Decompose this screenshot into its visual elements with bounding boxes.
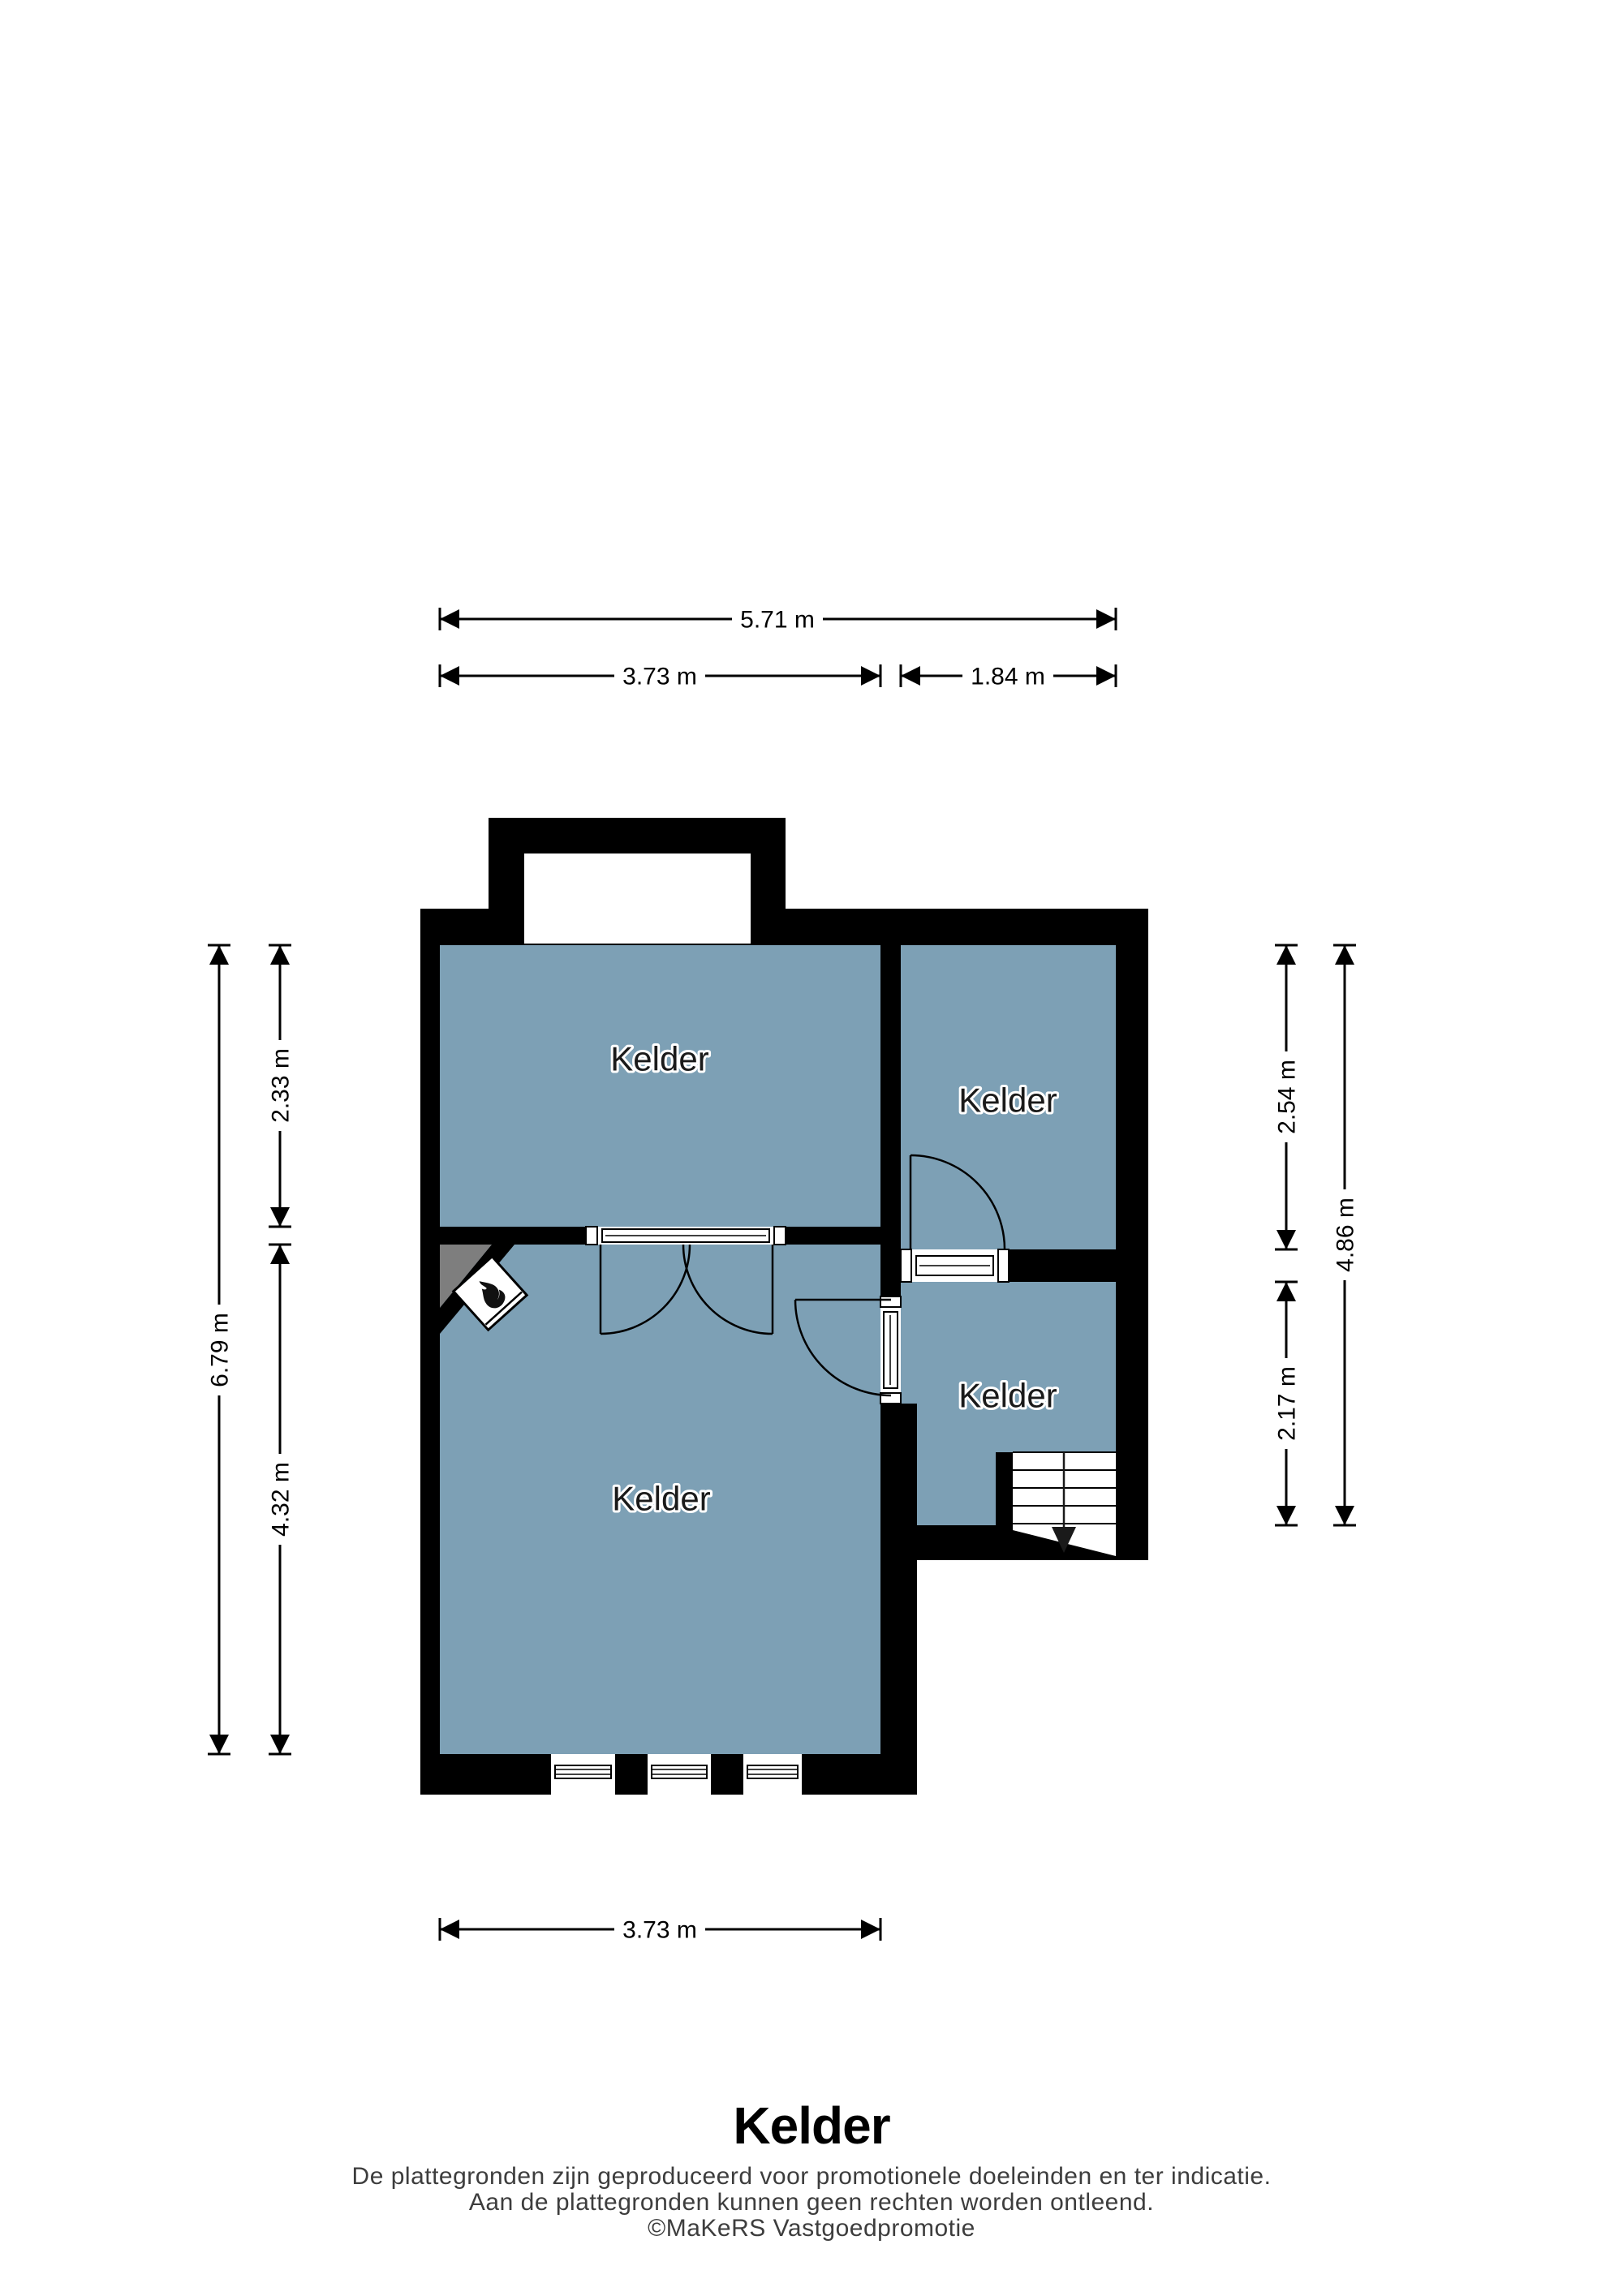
windows: [551, 1754, 802, 1793]
top-wall-right-segment: [786, 909, 1148, 945]
floor-title: Kelder: [733, 2096, 889, 2155]
copyright-line: ©MaKeRS Vastgoedpromotie: [648, 2215, 975, 2242]
divider-wall-lower: [880, 1404, 917, 1795]
bottom-wall-segment: [420, 1754, 551, 1795]
dimension-label: 4.32 m: [268, 1462, 295, 1537]
room-label: Kelder: [958, 1377, 1057, 1415]
floor-plan: Kelder Kelder Kelder Kelder 5.71 m 3.73 …: [0, 0, 1623, 2296]
left-mid-wall-segment: [786, 1227, 880, 1245]
dimension-label: 6.79 m: [207, 1313, 234, 1387]
dimension-label: 3.73 m: [622, 664, 697, 690]
window: [648, 1754, 711, 1793]
window: [743, 1754, 802, 1793]
left-mid-wall-segment: [440, 1227, 586, 1245]
left-outer-wall: [420, 909, 440, 1795]
disclaimer-line-2: Aan de plattegronden kunnen geen rechten…: [469, 2189, 1154, 2216]
niche-interior: [524, 853, 751, 944]
dimension-label: 3.73 m: [622, 1917, 697, 1944]
dimension-label: 4.86 m: [1332, 1197, 1359, 1272]
divider-door-threshold: [880, 1296, 901, 1404]
dimension-label: 1.84 m: [971, 664, 1045, 690]
room-label: Kelder: [612, 1480, 710, 1518]
bottom-wall-pier: [615, 1754, 648, 1795]
dimension-label: 2.17 m: [1274, 1366, 1301, 1441]
room-label: Kelder: [958, 1081, 1057, 1120]
bottom-wall-pier: [711, 1754, 743, 1795]
double-door-threshold: [586, 1227, 786, 1245]
room-top-left-floor: [440, 945, 880, 1227]
dimension-label: 2.33 m: [268, 1048, 295, 1123]
right-rooms-mid-wall: [1009, 1249, 1116, 1282]
top-right-door-threshold: [901, 1249, 1009, 1282]
dimension-label: 5.71 m: [740, 607, 815, 634]
stairs-side-wall: [996, 1452, 1013, 1560]
right-outer-wall: [1116, 909, 1148, 1560]
niche: [524, 853, 751, 944]
disclaimer-line-1: De plattegronden zijn geproduceerd voor …: [352, 2163, 1272, 2190]
room-label: Kelder: [610, 1040, 708, 1078]
dimension-label: 2.54 m: [1274, 1060, 1301, 1134]
window: [551, 1754, 615, 1793]
divider-wall-upper: [880, 909, 901, 1296]
